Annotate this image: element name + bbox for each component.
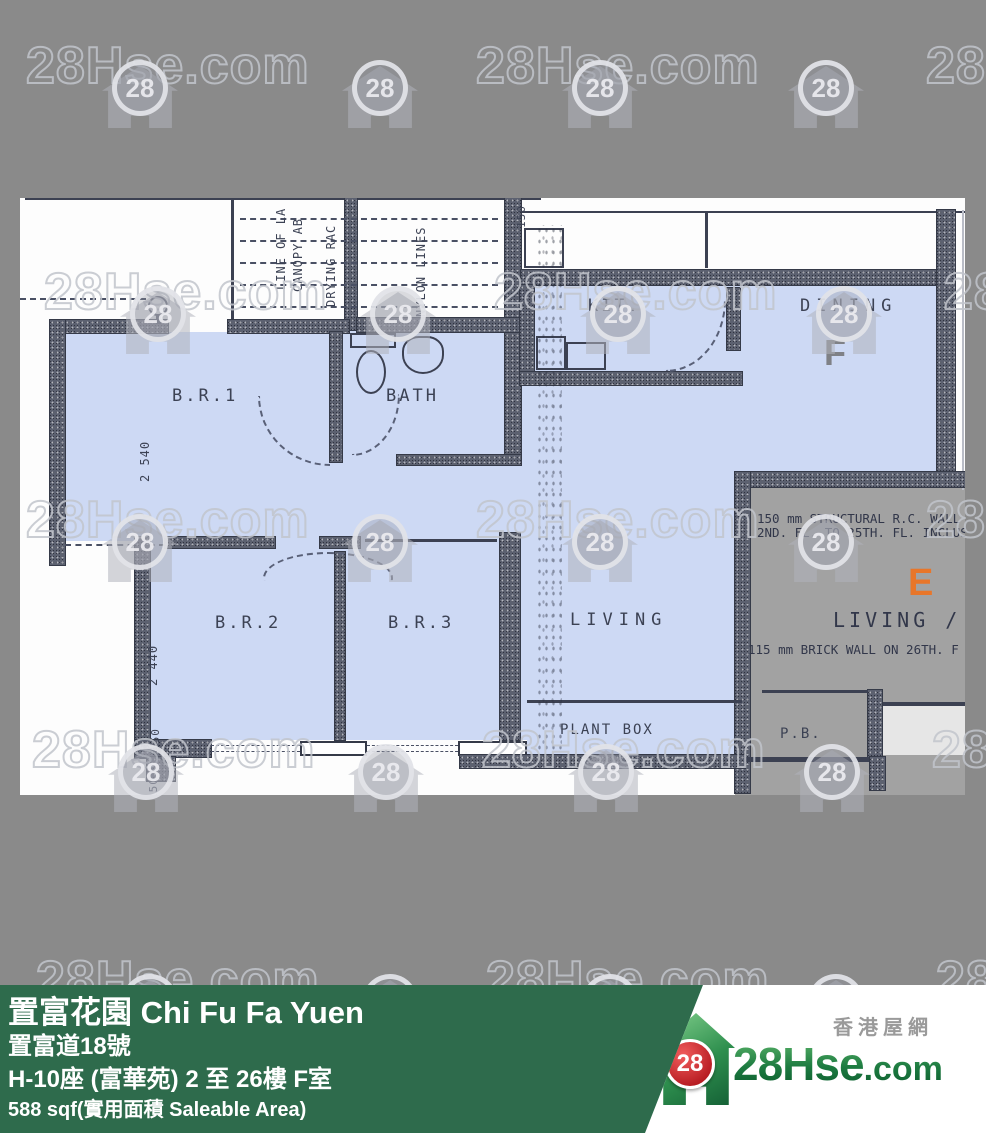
notch-top-line (883, 702, 965, 706)
note-living-d: LIVING / D (833, 608, 965, 632)
paper-right-line (962, 210, 964, 490)
watermark-house-icon: 28 (342, 66, 418, 128)
screenshot-root: B.R.1 BATH KIT. DINING B.R.2 B.R.3 LIVIN… (0, 0, 986, 1133)
room-label-living: LIVING (570, 610, 667, 630)
estate-address: 置富道18號 (8, 1026, 131, 1061)
paper-top-line (25, 198, 541, 200)
annotation-drying-rack: DRYING RAC (324, 225, 338, 307)
vent-stem (156, 314, 161, 324)
watermark-house-body (788, 66, 864, 128)
scan-noise (536, 225, 562, 758)
watermark-house-body (562, 66, 638, 128)
wall-segment (330, 332, 342, 462)
upper-strip-line (521, 211, 965, 213)
room-label-plant-box: PLANT BOX (560, 722, 654, 738)
wall-segment (135, 740, 211, 757)
cistern-icon (350, 333, 396, 348)
estate-area: 588 sqf(實用面積 Saleable Area) (8, 1093, 306, 1122)
dimension-br2: 2 440 (146, 645, 160, 686)
annotation-canopy: CANOPY AB (291, 218, 305, 292)
unit-f-label: F (824, 332, 846, 374)
unit-notch (883, 705, 965, 755)
note-structural-2: 2ND. FL. TO 25TH. FL. INCLUSIVE (757, 525, 965, 540)
room-label-bath: BATH (386, 386, 439, 406)
watermark-brand-text: 28Hse.com (926, 36, 986, 96)
room-label-dining: DINING (800, 296, 897, 316)
wall-segment (870, 757, 885, 790)
window-line (367, 745, 458, 752)
wall-segment (735, 472, 965, 487)
estate-block-unit: H-10座 (富華苑) 2 至 26樓 F室 (8, 1059, 332, 1094)
dashed-line (65, 544, 165, 546)
wall-segment (521, 270, 937, 285)
wall-segment (460, 755, 745, 768)
wall-segment (165, 537, 275, 548)
wall-segment (50, 320, 65, 565)
annotation-line-of: LINE OF LA (274, 208, 288, 290)
dimension-wall-pair: 150 150 (20, 535, 22, 588)
room-label-br3: B.R.3 (388, 613, 454, 633)
dimension-br1: 2 540 (138, 441, 152, 482)
room-label-br1: B.R.1 (172, 386, 238, 406)
wall-segment (937, 210, 955, 487)
watermark-house-icon: 28 (788, 66, 864, 128)
site-logo: 28 28Hse.com 香港屋網 (645, 985, 986, 1133)
window-line (211, 745, 300, 752)
room-label-pb: P.B. (780, 726, 822, 742)
room-label-br2: B.R.2 (215, 613, 281, 633)
toilet-icon (356, 350, 386, 394)
logo-tagline: 香港屋網 (833, 1011, 933, 1040)
kitchen-fixture (566, 342, 606, 370)
dashed-line (20, 298, 146, 300)
nylon-line (240, 306, 498, 308)
watermark-house-body (102, 66, 178, 128)
note-brick: 115 mm BRICK WALL ON 26TH. F (748, 642, 959, 657)
window-sill (458, 741, 527, 756)
wall-segment (727, 288, 740, 350)
watermark-28-badge: 28 (798, 60, 854, 116)
strip-divider (705, 213, 708, 268)
watermark-brand-text: 28Hse.com (26, 36, 310, 96)
watermark-28-badge: 28 (352, 60, 408, 116)
room-label-kit: KIT. (588, 296, 641, 316)
pb-top-line (762, 690, 868, 693)
vent-pipe-icon (148, 296, 168, 316)
dimension-wall-b: 150 (147, 777, 160, 795)
sink-icon (402, 336, 444, 374)
balcony-left-wall (231, 198, 234, 330)
floor-plan: B.R.1 BATH KIT. DINING B.R.2 B.R.3 LIVIN… (20, 198, 965, 795)
wall-segment (397, 455, 521, 465)
wall-segment (735, 472, 750, 793)
wall-segment (335, 552, 345, 740)
unit-e-label: E (908, 562, 933, 605)
annotation-nylon-lines: NYLON LINES (414, 227, 428, 317)
dimension-wall-a: 150 (149, 728, 162, 751)
wall-segment (868, 690, 882, 760)
wall-segment (500, 533, 520, 740)
watermark-28-badge: 28 (112, 60, 168, 116)
note-structural-1: 150 mm STRUCTURAL R.C. WALL F (757, 511, 965, 526)
wall-segment (357, 318, 525, 332)
logo-brand-suffix: .com (864, 1050, 943, 1088)
logo-brand-text: 28Hse.com (733, 1037, 943, 1091)
wall-segment (320, 537, 360, 548)
logo-brand-main: 28Hse (733, 1038, 864, 1090)
dimension-wall-top: 150 (515, 205, 528, 228)
br3-top-line (365, 539, 497, 542)
watermark-house-icon: 28 (102, 66, 178, 128)
watermark-28-badge: 28 (572, 60, 628, 116)
wall-segment (520, 285, 534, 385)
wall-segment (50, 320, 168, 333)
window-sill (300, 741, 367, 756)
watermark-house-body (342, 66, 418, 128)
unit-bottom-line (737, 757, 875, 762)
watermark-brand-text: 28Hse.com (476, 36, 760, 96)
watermark-house-icon: 28 (562, 66, 638, 128)
